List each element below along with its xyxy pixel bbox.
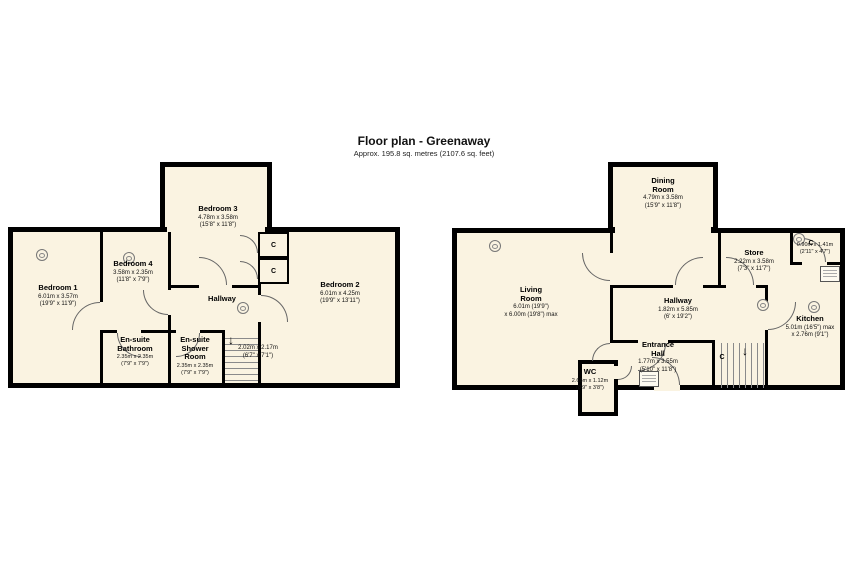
- room-dims: 4.79m x 3.58m (15'9" x 11'8"): [621, 195, 705, 211]
- room-label-living-room: Living Room 6.01m (19'9") x 6.00m (19'8"…: [484, 286, 578, 320]
- cupboard: C: [258, 258, 289, 284]
- room-name: Bedroom 1: [12, 284, 104, 293]
- room-label-dining-room: Dining Room 4.79m x 3.58m (15'9" x 11'8"…: [621, 177, 705, 211]
- floorplan-page: Floor plan - Greenaway Approx. 195.8 sq.…: [0, 0, 848, 565]
- cupboard-label: C: [271, 242, 276, 249]
- room-dims: 2.66m x 1.12m (8'9" x 3'8"): [566, 378, 614, 392]
- wall-segment: [610, 233, 613, 253]
- cupboard-dims-top-right: 0.90m x 1.41m (2'11" x 4'7"): [788, 241, 842, 256]
- wall-segment: [765, 330, 768, 385]
- room-dims: 6.01m (19'9") x 6.00m (19'8") max: [484, 304, 578, 320]
- wall-segment: [100, 330, 103, 383]
- wall-segment: [718, 285, 726, 288]
- room-dims: 6.01m x 4.25m (19'9" x 13'11"): [298, 291, 382, 307]
- wall-segment: [100, 330, 117, 333]
- room-name: Kitchen: [778, 315, 842, 324]
- room-name: Bedroom 2: [298, 281, 382, 290]
- room-name: Hallway: [642, 297, 714, 306]
- room-dims: 4.78m x 3.58m (15'8" x 11'8"): [179, 215, 257, 231]
- wall-segment: [613, 285, 673, 288]
- light-fixture-icon: [237, 302, 249, 314]
- room-dims: 5.01m (16'5") max x 2.76m (9'1"): [778, 325, 842, 341]
- room-dims: 2.02m x 2.17m (6'7" x 7'1"): [222, 345, 294, 361]
- fixture-box: [820, 266, 840, 282]
- stairs-dims-label: 2.02m x 2.17m (6'7" x 7'1"): [222, 344, 294, 361]
- cupboard-label-under-stairs: C: [714, 346, 730, 364]
- room-dims: 1.82m x 5.85m (6' x 19'2"): [642, 307, 714, 323]
- wall-segment: [610, 285, 613, 343]
- light-fixture-icon: [489, 240, 501, 252]
- room-label-hallway: Hallway: [196, 295, 248, 304]
- room-label-bedroom-1: Bedroom 1 6.01m x 3.57m (19'9" x 11'9"): [12, 284, 104, 309]
- room-label-entrance-hall: Entrance Hall 1.77m x 3.55m (5'10" x 11'…: [620, 341, 696, 375]
- light-fixture-icon: [808, 301, 820, 313]
- wall-segment: [171, 285, 199, 288]
- wall-segment: [827, 262, 840, 265]
- room-dims: 0.90m x 1.41m (2'11" x 4'7"): [788, 242, 842, 256]
- room-dims: 6.01m x 3.57m (19'9" x 11'9"): [12, 294, 104, 310]
- room-name: Bedroom 3: [179, 205, 257, 214]
- room-name: WC: [566, 368, 614, 377]
- wall-segment: [168, 315, 171, 333]
- room-label-kitchen: Kitchen 5.01m (16'5") max x 2.76m (9'1"): [778, 315, 842, 340]
- cupboard: C: [258, 232, 289, 258]
- wall-segment: [790, 262, 802, 265]
- room-dims: 2.22m x 3.58m (7'3" x 11'7"): [718, 259, 790, 275]
- room-dims: 2.35m x 2.35m (7'9" x 7'9"): [168, 363, 222, 377]
- light-fixture-icon: [36, 249, 48, 261]
- stairs-down-arrow-icon: ↓: [742, 345, 748, 357]
- room-label-bedroom-4: Bedroom 4 3.58m x 2.35m (11'8" x 7'9"): [97, 260, 169, 285]
- room-label-bedroom-3: Bedroom 3 4.78m x 3.58m (15'8" x 11'8"): [179, 205, 257, 230]
- room-dims: 3.58m x 2.35m (11'8" x 7'9"): [97, 270, 169, 286]
- wall-segment: [232, 285, 258, 288]
- room-label-ensuite-shower: En-suite Shower Room 2.35m x 2.35m (7'9"…: [168, 336, 222, 377]
- room-label-hallway: Hallway 1.82m x 5.85m (6' x 19'2"): [642, 297, 714, 322]
- cupboard-label: C: [271, 268, 276, 275]
- room-name: Living Room: [484, 286, 578, 303]
- room-dims: 2.35m x 2.35m (7'9" x 7'9"): [104, 354, 166, 368]
- room-name: En-suite Shower Room: [168, 336, 222, 362]
- page-title: Floor plan - Greenaway: [0, 134, 848, 148]
- room-name: Dining Room: [621, 177, 705, 194]
- wall-opening: [615, 223, 711, 236]
- room-dims: 1.77m x 3.55m (5'10" x 11'8"): [620, 359, 696, 375]
- room-label-ensuite-bathroom: En-suite Bathroom 2.35m x 2.35m (7'9" x …: [104, 336, 166, 369]
- room-label-wc: WC 2.66m x 1.12m (8'9" x 3'8"): [566, 368, 614, 392]
- wall-segment: [703, 285, 718, 288]
- page-subtitle: Approx. 195.8 sq. metres (2107.6 sq. fee…: [0, 149, 848, 158]
- room-name: Store: [718, 249, 790, 258]
- light-fixture-icon: [757, 299, 769, 311]
- cupboard-label: C: [719, 354, 724, 361]
- room-name: Entrance Hall: [620, 341, 696, 358]
- page-header: Floor plan - Greenaway Approx. 195.8 sq.…: [0, 134, 848, 158]
- room-name: Hallway: [196, 295, 248, 304]
- room-label-bedroom-2: Bedroom 2 6.01m x 4.25m (19'9" x 13'11"): [298, 281, 382, 306]
- room-label-store: Store 2.22m x 3.58m (7'3" x 11'7"): [718, 249, 790, 274]
- room-name: Bedroom 4: [97, 260, 169, 269]
- room-name: En-suite Bathroom: [104, 336, 166, 353]
